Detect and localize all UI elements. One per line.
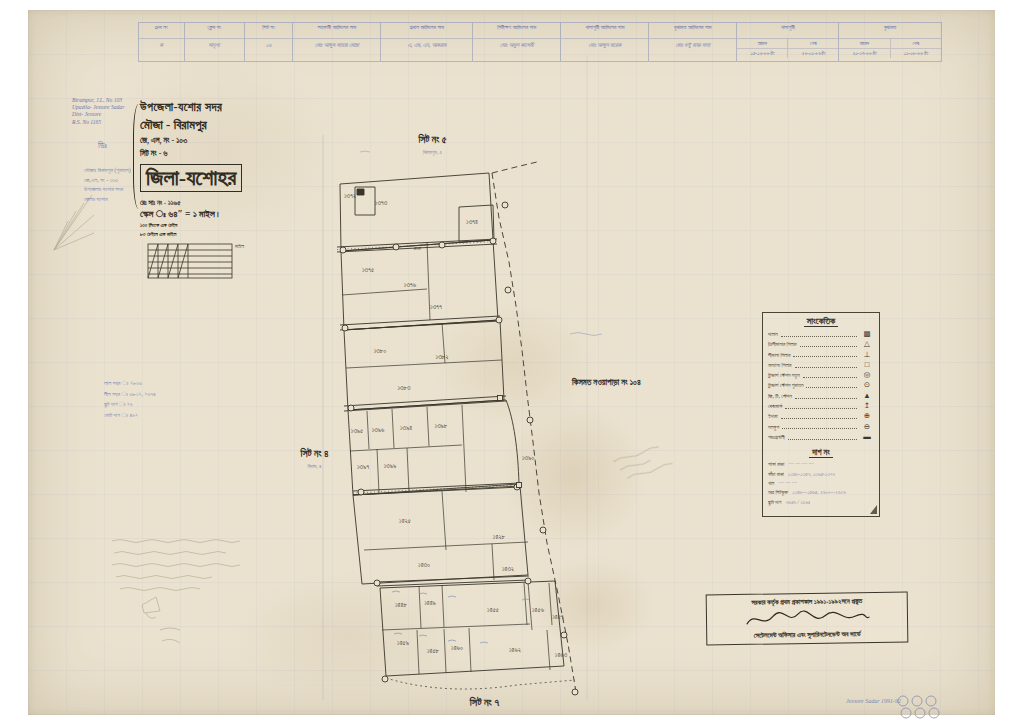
paper-stain	[528, 555, 658, 655]
sheet-label-4: সিট নং ৪ বিরাম, ৪	[272, 448, 357, 470]
plot-count-note: লাল নম্বর ঃ ২৮০৩নীল নম্বর ঃ ৩৮১২, ২৯৭৪ছু…	[104, 378, 224, 420]
officer-signature	[741, 607, 873, 631]
legend-item: বেঞ্চমার্ক↥	[768, 401, 874, 411]
legend-symbol-icon: ⊖	[860, 422, 874, 432]
legend-symbol-icon: ◎	[860, 370, 874, 380]
legend-symbol-icon: ▬	[860, 432, 874, 442]
legend-item: অন্যান্য পিলার□	[768, 360, 874, 370]
legend-symbol-icon: ↥	[860, 401, 874, 411]
header-column: ফ্রেম নংসাদৃশ্য	[185, 23, 245, 61]
dag-number-rows: পাকা রাস্তা···· ···· ···· ····কাঁচা রাস্…	[768, 460, 874, 507]
header-column: বুঝারতআরম্ভশেষ২১-০৭-৮৮ইং১১-০৮-৮৮ইং	[839, 23, 941, 61]
marginal-mark: ডিঃ	[98, 140, 107, 151]
sheet-5-text: সিট নং ৫	[418, 134, 446, 145]
scale-text: স্কেল ঃ ৬৪″ = ১ মাইল।	[140, 209, 325, 220]
paper-stain	[498, 400, 648, 550]
marginal-note-bengali: মৌজাঃ বিরামপুর (পুরাতন)জে,এল, নং - ১০৩উপ…	[84, 166, 170, 204]
dag-row: পাকা রাস্তা···· ···· ···· ····	[768, 460, 874, 469]
legend-box: সাংকেতিক দালান▩ত্রিসীমানার পিলার△সীমানা …	[762, 312, 880, 517]
header-column: খানাপুরী আমিনের নামমোঃ আব্দুল বারেক	[561, 23, 649, 61]
marginal-note-english: Birampur, J.L. No 103Upazila- Jessore Sa…	[72, 97, 202, 126]
legend-item: জি, টি, স্টেশন▲	[768, 391, 874, 401]
stamp-line-1: সরকার কর্তৃক প্রথম প্রকাশকাল ১৯৯১-১৯৯২সন…	[712, 597, 902, 608]
stamp-line-2: সেটেলমেন্ট অফিসার এবং সুপারিনটেনডেন্ট অব…	[712, 629, 902, 640]
sheet-4-subnote: বিরাম, ৪	[272, 463, 357, 470]
header-column: সহকারী আমিনের নামমোঃ আব্দুস সাত্তার মোল্…	[293, 23, 381, 61]
legend-title: সাংকেতিক	[804, 316, 838, 327]
legend-item: ট্রাভার্স স্টেশন পুরাতন⊙	[768, 380, 874, 390]
header-column: খানাপুরীআরম্ভশেষ১৫-১২-৮৮ইং২২-০১-৮৯ইং	[737, 23, 839, 61]
jl-number-line: জে, এল, নং - ১০৩	[140, 136, 325, 146]
legend-symbol-icon: ⊙	[860, 380, 874, 390]
header-column: প্রধান আমিনের নামএ, এম, এন, আকরাম	[381, 23, 473, 61]
legend-symbol-icon: □	[860, 360, 874, 370]
header-column: নিরীক্ষণ আমিনের নামমোঃ আবুল কাসেমী	[473, 23, 561, 61]
diagonal-scale-bar: মাইল	[140, 238, 250, 284]
legend-item: ট্রাভার্স স্টেশন নতুন◎	[768, 370, 874, 380]
legend-item: ইদারা⊕	[768, 411, 874, 421]
legend-item: দালান▩	[768, 329, 874, 339]
chain-note-1: ১০০ লিংকে এক চেইন	[140, 222, 325, 229]
header-column: বুঝারত আমিনের নামমোঃ মন্টু বাবর সাহা	[649, 23, 737, 61]
paper-stain	[428, 300, 598, 430]
sheet-number-line: সিট নং - ৬	[140, 149, 325, 159]
legend-item: নলকূপ⊖	[768, 422, 874, 432]
legend-symbol-icon: ▩	[860, 329, 874, 339]
sheet-label-5: সিট নং ৫ বিরামপুর, ৫	[385, 134, 480, 156]
sheet-label-7: সিট নং ৭	[432, 697, 537, 709]
survey-header-table: ক্রম নংকফ্রেম নংসাদৃশ্যসিট নং১৬সহকারী আম…	[138, 22, 942, 62]
dag-row: ছুটা দাগ২৬৪৯ / ৩১৬৪	[768, 498, 874, 507]
legend-items: দালান▩ত্রিসীমানার পিলার△সীমানা পিলার⊥অন্…	[768, 329, 874, 442]
legend-symbol-icon: △	[860, 339, 874, 349]
paper-stain	[228, 570, 468, 700]
header-column: সিট নং১৬	[245, 23, 293, 61]
dag-row: খাল···· ···· ····	[768, 479, 874, 488]
map-paper-sheet: ক্রম নংকফ্রেম নংসাদৃশ্যসিট নং১৬সহকারী আম…	[28, 10, 995, 715]
legend-symbol-icon: ⊕	[860, 411, 874, 421]
dag-row: কাঁচা রাস্তা১৩৪৮-১৩৫৭, ১৩৬৪-১৩৭২	[768, 470, 874, 479]
sheet-7-text: সিট নং ৭	[470, 697, 499, 708]
corner-note: Jessore Sadar 1991-92	[846, 698, 901, 704]
scanned-cadastral-map-page: ক্রম নংকফ্রেম নংসাদৃশ্যসিট নং১৬সহকারী আম…	[0, 0, 1024, 723]
dag-row: অত্র সিটভুক্ত১৩৪৮—১৪৬৪, ২৯০০—২৯৩৯	[768, 488, 874, 497]
sheet-5-subnote: বিরামপুর, ৫	[385, 149, 480, 156]
neighbor-mouza-label: কিসমত নওয়াপাড়া নং ১০৪	[572, 377, 752, 388]
legend-symbol-icon: ⊥	[860, 350, 874, 360]
scale-bar-unit-label: মাইল	[234, 243, 244, 249]
dag-section-title: দাগ নং	[809, 447, 833, 458]
corner-circle-marks	[894, 693, 952, 723]
legend-item: সীমানা পিলার⊥	[768, 350, 874, 360]
header-column: ক্রম নংক	[139, 23, 185, 61]
legend-item: পয়ঃপ্রণালী▬	[768, 432, 874, 442]
chain-note-2: ৮০ চেইনে এক মাইল	[140, 231, 325, 238]
sheet-4-text: সিট নং ৪	[301, 448, 329, 459]
legend-item: ত্রিসীমানার পিলার△	[768, 339, 874, 349]
publication-stamp: সরকার কর্তৃক প্রথম প্রকাশকাল ১৯৯১-১৯৯২সন…	[706, 592, 909, 646]
legend-symbol-icon: ▲	[860, 391, 874, 401]
